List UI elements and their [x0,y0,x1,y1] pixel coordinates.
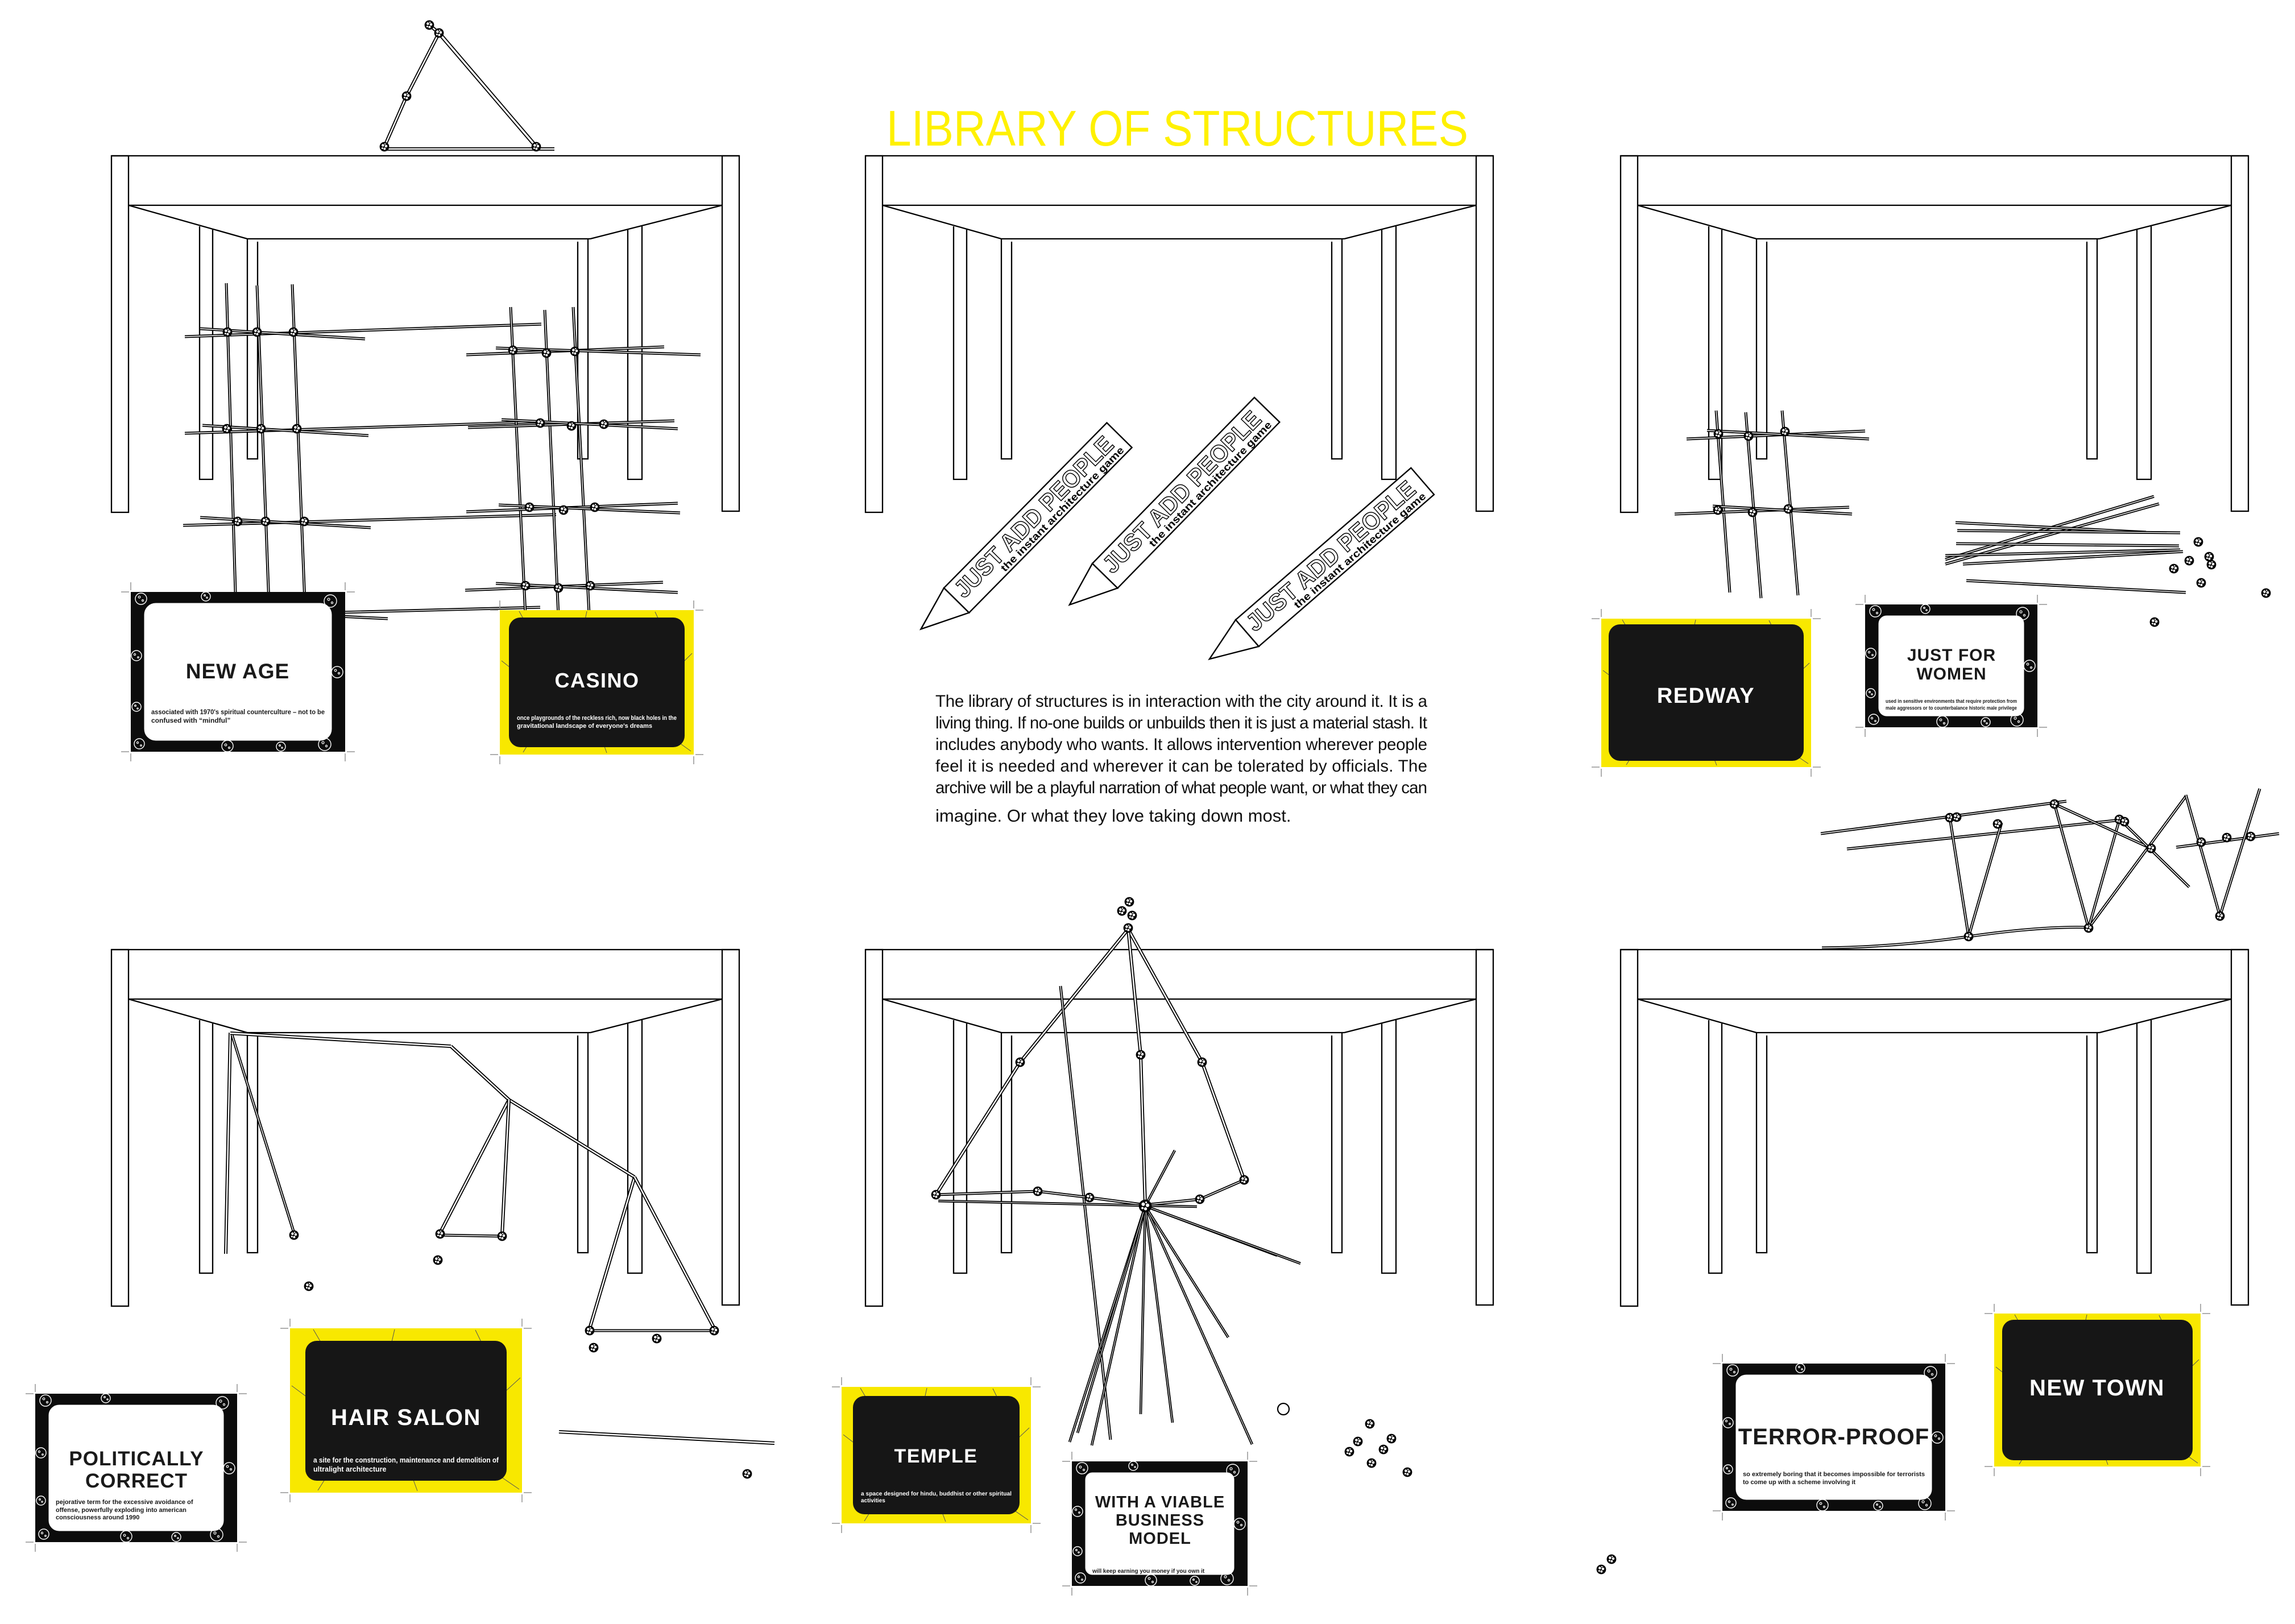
svg-text:WITH A VIABLE: WITH A VIABLE [1095,1493,1225,1511]
svg-text:will keep earning you money if: will keep earning you money if you own i… [1092,1568,1205,1575]
svg-text:so extremely boring that it be: so extremely boring that it becomes impo… [1743,1471,1925,1478]
svg-text:confused with “mindful”: confused with “mindful” [151,716,230,724]
svg-text:activities: activities [861,1498,885,1504]
svg-text:BUSINESS: BUSINESS [1116,1511,1204,1530]
svg-text:NEW AGE: NEW AGE [186,660,289,683]
svg-text:to come up with a scheme invol: to come up with a scheme involving it [1743,1479,1855,1486]
svg-text:NEW TOWN: NEW TOWN [2029,1376,2165,1401]
svg-text:consciousness around 1990: consciousness around 1990 [56,1514,139,1521]
svg-text:imagine. Or what they love tak: imagine. Or what they love taking down m… [935,806,1291,826]
svg-text:JUST FOR: JUST FOR [1907,646,1996,665]
svg-text:LIBRARY OF STRUCTURES: LIBRARY OF STRUCTURES [886,100,1468,156]
svg-text:includes anybody who wants. It: includes anybody who wants. It allows in… [935,735,1427,754]
svg-text:POLITICALLY: POLITICALLY [69,1448,204,1470]
svg-text:archive will be a playful narr: archive will be a playful narration of w… [935,778,1427,797]
svg-text:feel it is needed and wherever: feel it is needed and wherever it can be… [935,757,1427,776]
svg-text:ultralight architecture: ultralight architecture [313,1465,387,1473]
svg-text:HAIR SALON: HAIR SALON [331,1405,481,1430]
svg-text:living thing. If no-one builds: living thing. If no-one builds or unbuil… [935,714,1427,732]
svg-text:TERROR-PROOF: TERROR-PROOF [1738,1424,1929,1449]
svg-text:pejorative term for the excess: pejorative term for the excessive avoida… [56,1499,193,1506]
svg-text:TEMPLE: TEMPLE [894,1445,978,1467]
svg-text:The library of structures is i: The library of structures is in interact… [935,692,1428,711]
svg-text:used in sensitive environments: used in sensitive environments that requ… [1886,698,2017,705]
svg-text:gravitational landscape of eve: gravitational landscape of everyone's dr… [517,723,652,730]
svg-text:MODEL: MODEL [1129,1530,1191,1548]
svg-text:REDWAY: REDWAY [1657,684,1755,708]
svg-text:offense, powerfully exploding: offense, powerfully exploding into ameri… [56,1507,187,1514]
svg-text:WOMEN: WOMEN [1916,665,1986,683]
svg-text:once playgrounds of the reckle: once playgrounds of the reckless rich, n… [517,715,677,722]
svg-text:CORRECT: CORRECT [85,1470,188,1492]
svg-text:associated with 1970's spiritu: associated with 1970's spiritual counter… [151,708,325,716]
svg-text:CASINO: CASINO [554,669,639,692]
svg-text:a space designed for hindu, bu: a space designed for hindu, buddhist or … [861,1491,1012,1497]
svg-text:a site for the construction, m: a site for the construction, maintenance… [313,1456,499,1464]
svg-text:male aggressors or to counterb: male aggressors or to counterbalance his… [1886,705,2017,711]
